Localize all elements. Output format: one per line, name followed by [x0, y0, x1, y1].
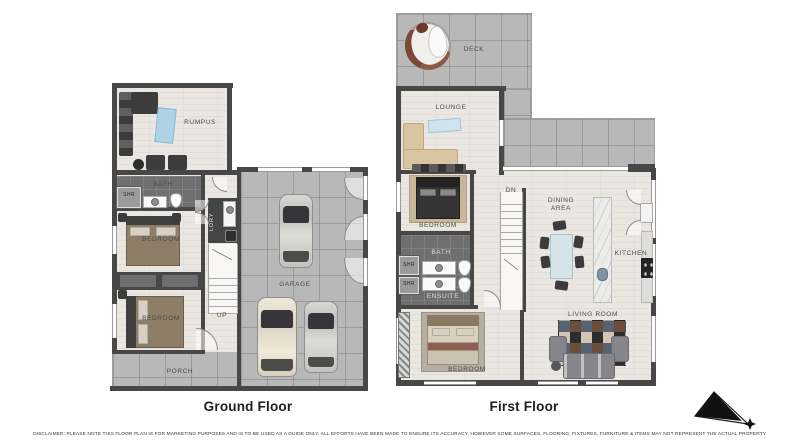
pillow	[456, 328, 474, 336]
first-floor-title: First Floor	[449, 399, 599, 414]
bed-headboard	[416, 177, 460, 187]
first-floor-plan: DECK LOUNGE BEDROOM DN DINING AREA KITCH…	[0, 0, 800, 446]
island-sink	[597, 268, 608, 281]
wall	[396, 86, 401, 174]
bed-headboard	[427, 315, 479, 326]
side-table	[551, 361, 561, 371]
dining-chair	[555, 280, 569, 291]
pillow	[420, 189, 436, 196]
disclaimer-text: DISCLAIMER: PLEASE NOTE THIS FLOOR PLAN …	[0, 432, 800, 437]
dining-chair	[540, 255, 550, 268]
wall	[470, 170, 474, 235]
window	[503, 166, 631, 171]
floor-plan-canvas: RUMPUS BATH SHR LDRY BEDROOM BEDROOM UP …	[0, 0, 800, 446]
window	[499, 120, 504, 146]
dining-chair	[574, 256, 584, 269]
room-label-bath: BATH	[428, 249, 454, 257]
basin	[435, 264, 443, 272]
cooktop	[641, 258, 653, 278]
deck-floor	[503, 88, 532, 120]
wardrobe	[398, 312, 410, 378]
basin	[435, 280, 443, 288]
pillow	[440, 189, 456, 196]
room-label-bedroom-left: BEDROOM	[416, 222, 460, 230]
wall	[470, 235, 474, 309]
egg-chair-cushion	[426, 25, 448, 58]
wall	[396, 305, 478, 309]
room-label-bedroom-lower: BEDROOM	[444, 366, 490, 374]
room-label-shr-lower: SHR	[400, 281, 418, 287]
tv-unit	[412, 164, 466, 172]
deck-floor	[503, 118, 655, 170]
pillow	[432, 328, 450, 336]
room-label-living-room: LIVING ROOM	[562, 311, 624, 319]
north-arrow-icon	[692, 389, 762, 435]
room-label-dn: DN	[502, 187, 520, 195]
wall	[396, 231, 474, 235]
window	[396, 182, 401, 212]
sofa	[563, 353, 615, 379]
room-label-ensuite: ENSUITE	[424, 293, 462, 301]
window	[586, 381, 618, 385]
room-label-deck: DECK	[456, 46, 492, 54]
window	[651, 316, 656, 362]
window	[424, 381, 476, 385]
wall	[396, 86, 506, 91]
ground-floor-title: Ground Floor	[173, 399, 323, 414]
fridge	[640, 203, 653, 223]
coffee-table	[428, 118, 462, 133]
room-label-kitchen: KITCHEN	[608, 250, 654, 258]
room-label-shr-upper: SHR	[400, 262, 418, 268]
room-label-lounge: LOUNGE	[430, 104, 472, 112]
wall	[520, 307, 524, 384]
dining-table	[550, 234, 573, 279]
dining-chair	[539, 237, 549, 250]
window	[538, 381, 578, 385]
stair-treads	[501, 198, 522, 256]
dining-chair	[573, 235, 584, 248]
room-label-dining-area: DINING AREA	[541, 197, 581, 214]
dining-chair	[552, 220, 566, 231]
